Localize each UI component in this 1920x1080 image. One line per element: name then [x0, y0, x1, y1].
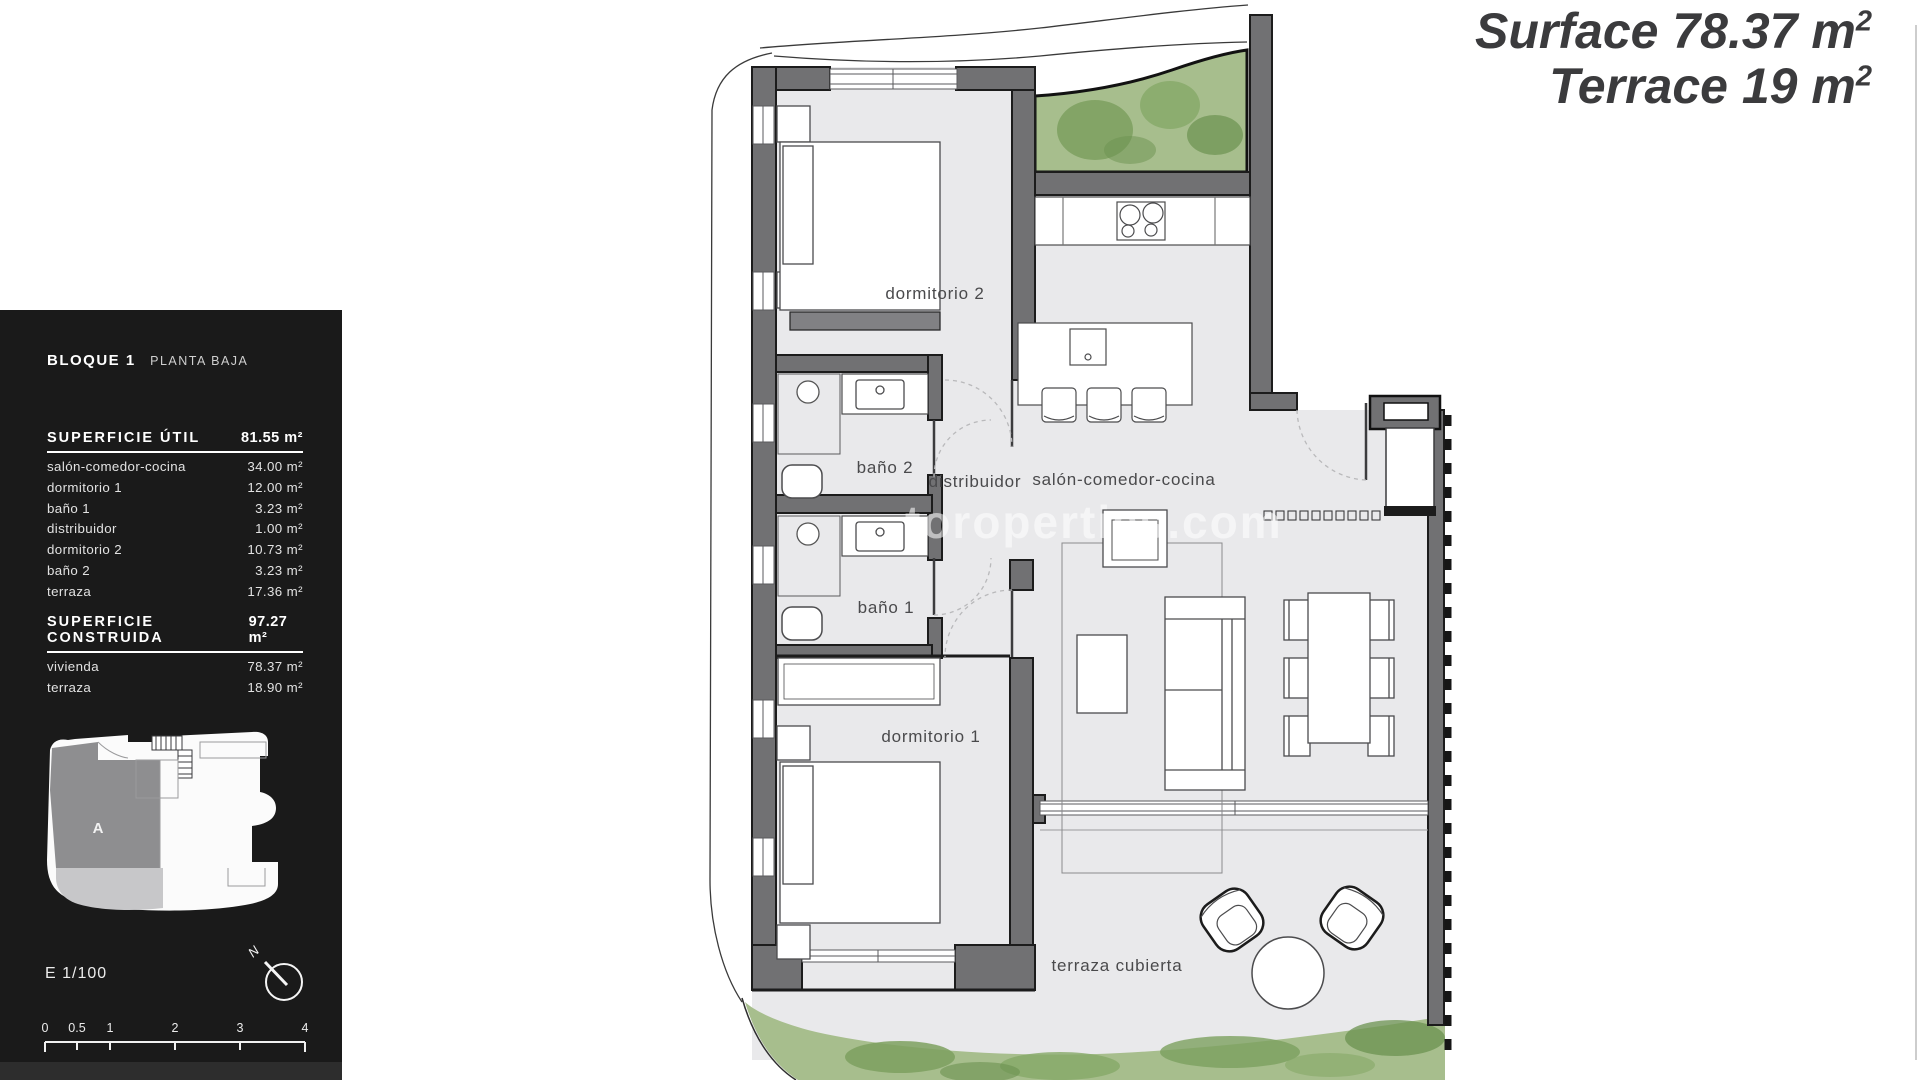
surface-unit: m — [1811, 3, 1855, 59]
watermark: toroperties.com — [905, 496, 1283, 548]
terrace-sup: 2 — [1856, 60, 1872, 92]
block-title-bold: BLOQUE 1 — [47, 352, 136, 369]
superficie-util-table: SUPERFICIE ÚTIL 81.55 m² salón-comedor-c… — [47, 430, 303, 603]
terrace-label: Terrace — [1549, 58, 1728, 114]
surface-value: 78.37 — [1672, 3, 1797, 59]
label-terraza-cubierta: terraza cubierta — [1052, 956, 1183, 975]
svg-text:3: 3 — [237, 1021, 244, 1035]
svg-text:N: N — [245, 942, 262, 960]
table-row: vivienda78.37 m² — [47, 657, 303, 678]
table-row: dormitorio 112.00 m² — [47, 478, 303, 499]
superficie-construida-value: 97.27 m² — [249, 614, 303, 646]
label-bano-2: baño 2 — [857, 458, 914, 477]
label-distribuidor: distribuidor — [929, 472, 1022, 491]
table-row: distribuidor1.00 m² — [47, 519, 303, 540]
table-row: salón-comedor-cocina34.00 m² — [47, 457, 303, 478]
surface-label: Surface — [1475, 3, 1658, 59]
svg-text:0.5: 0.5 — [68, 1021, 85, 1035]
block-title: BLOQUE 1 PLANTA BAJA — [47, 352, 307, 370]
scale-text: E 1/100 — [45, 965, 107, 982]
table-row: terraza17.36 m² — [47, 582, 303, 603]
table-row: baño 13.23 m² — [47, 499, 303, 520]
svg-text:1: 1 — [107, 1021, 114, 1035]
superficie-construida-label: SUPERFICIE CONSTRUIDA — [47, 614, 249, 646]
svg-text:2: 2 — [172, 1021, 179, 1035]
surface-header: Surface 78.37 m2 Terrace 19 m2 — [1475, 4, 1872, 114]
label-dormitorio-1: dormitorio 1 — [881, 727, 980, 746]
garden-patio — [1035, 50, 1247, 172]
label-bano-1: baño 1 — [858, 598, 915, 617]
superficie-util-label: SUPERFICIE ÚTIL — [47, 430, 200, 446]
terrace-value: 19 — [1742, 58, 1798, 114]
svg-text:0: 0 — [42, 1021, 49, 1035]
surface-sup: 2 — [1856, 5, 1872, 37]
table-row: dormitorio 210.73 m² — [47, 540, 303, 561]
superficie-util-value: 81.55 m² — [241, 430, 303, 446]
terrace-line: Terrace 19 m2 — [1475, 59, 1872, 114]
stove-icon — [1117, 202, 1165, 240]
scale-bar: 0 0.5 1 2 3 4 — [42, 1021, 309, 1052]
table-row: baño 23.23 m² — [47, 561, 303, 582]
site-plan-mini: A — [47, 732, 278, 911]
superficie-util-header: SUPERFICIE ÚTIL 81.55 m² — [47, 430, 303, 453]
superficie-construida-header: SUPERFICIE CONSTRUIDA 97.27 m² — [47, 614, 303, 653]
block-title-subtitle: PLANTA BAJA — [150, 354, 248, 368]
terrace-unit: m — [1811, 58, 1855, 114]
svg-text:4: 4 — [302, 1021, 309, 1035]
furniture-dormitorio-1 — [777, 658, 940, 959]
label-salon: salón-comedor-cocina — [1032, 470, 1215, 489]
north-compass-icon: N — [245, 942, 302, 1000]
round-table — [1252, 937, 1324, 1009]
table-row: terraza18.90 m² — [47, 678, 303, 699]
superficie-construida-table: SUPERFICIE CONSTRUIDA 97.27 m² vivienda7… — [47, 614, 303, 699]
siteplan-zone-label: A — [93, 820, 106, 837]
surface-line: Surface 78.37 m2 — [1475, 4, 1872, 59]
label-dormitorio-2: dormitorio 2 — [885, 284, 984, 303]
